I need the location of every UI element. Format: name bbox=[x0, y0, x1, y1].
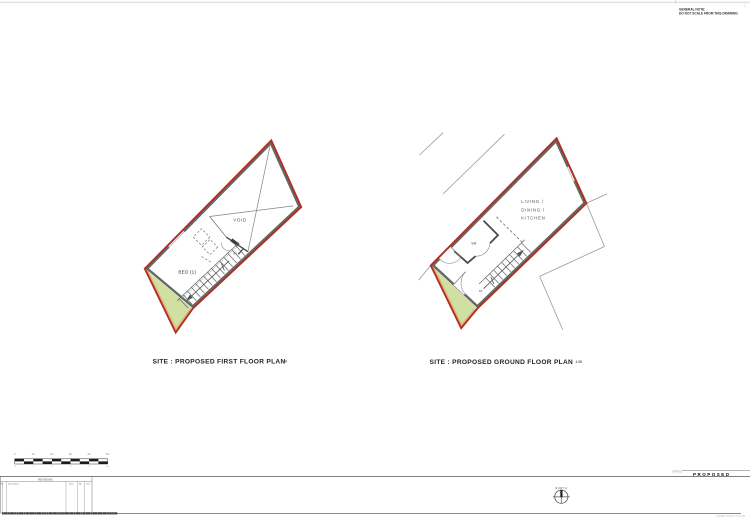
svg-text:STATUS:: STATUS: bbox=[672, 470, 683, 474]
svg-text:ST.: ST. bbox=[479, 289, 484, 293]
svg-text:Date: Date bbox=[69, 482, 74, 485]
svg-text:1m: 1m bbox=[32, 453, 35, 456]
svg-text:4m: 4m bbox=[87, 453, 90, 456]
svg-text:DO NOT SCALE FROM THIS DRAWING: DO NOT SCALE FROM THIS DRAWING bbox=[679, 11, 738, 15]
svg-text:SITE : PROPOSED FIRST FLOOR PL: SITE : PROPOSED FIRST FLOOR PLAN bbox=[153, 358, 286, 365]
svg-text:SH: SH bbox=[471, 241, 476, 245]
svg-text:5m: 5m bbox=[106, 466, 109, 468]
svg-text:DINING /: DINING / bbox=[521, 208, 544, 213]
svg-text:KITCHEN: KITCHEN bbox=[521, 216, 545, 221]
svg-text:3m: 3m bbox=[69, 453, 72, 456]
svg-text:1:50: 1:50 bbox=[281, 359, 288, 363]
svg-text:PROPOSED: PROPOSED bbox=[693, 472, 731, 477]
svg-text:NORTH: NORTH bbox=[555, 486, 567, 490]
svg-text:No.: No. bbox=[1, 483, 5, 485]
svg-text:VOID: VOID bbox=[233, 217, 247, 222]
svg-text:Copyright reserved - Drg 1001: Copyright reserved - Drg 1001 bbox=[716, 514, 746, 517]
svg-text:SITE : PROPOSED GROUND FLOOR P: SITE : PROPOSED GROUND FLOOR PLAN bbox=[430, 359, 574, 366]
svg-text:ST.: ST. bbox=[233, 251, 238, 255]
svg-text:1:50: 1:50 bbox=[576, 360, 583, 364]
svg-text:5m: 5m bbox=[106, 453, 109, 456]
svg-text:REVISIONS: REVISIONS bbox=[38, 477, 53, 481]
svg-text:2m: 2m bbox=[50, 453, 53, 456]
svg-text:BED (1): BED (1) bbox=[178, 269, 196, 274]
svg-text:LIVING /: LIVING / bbox=[521, 199, 544, 204]
svg-text:Description: Description bbox=[8, 482, 20, 485]
